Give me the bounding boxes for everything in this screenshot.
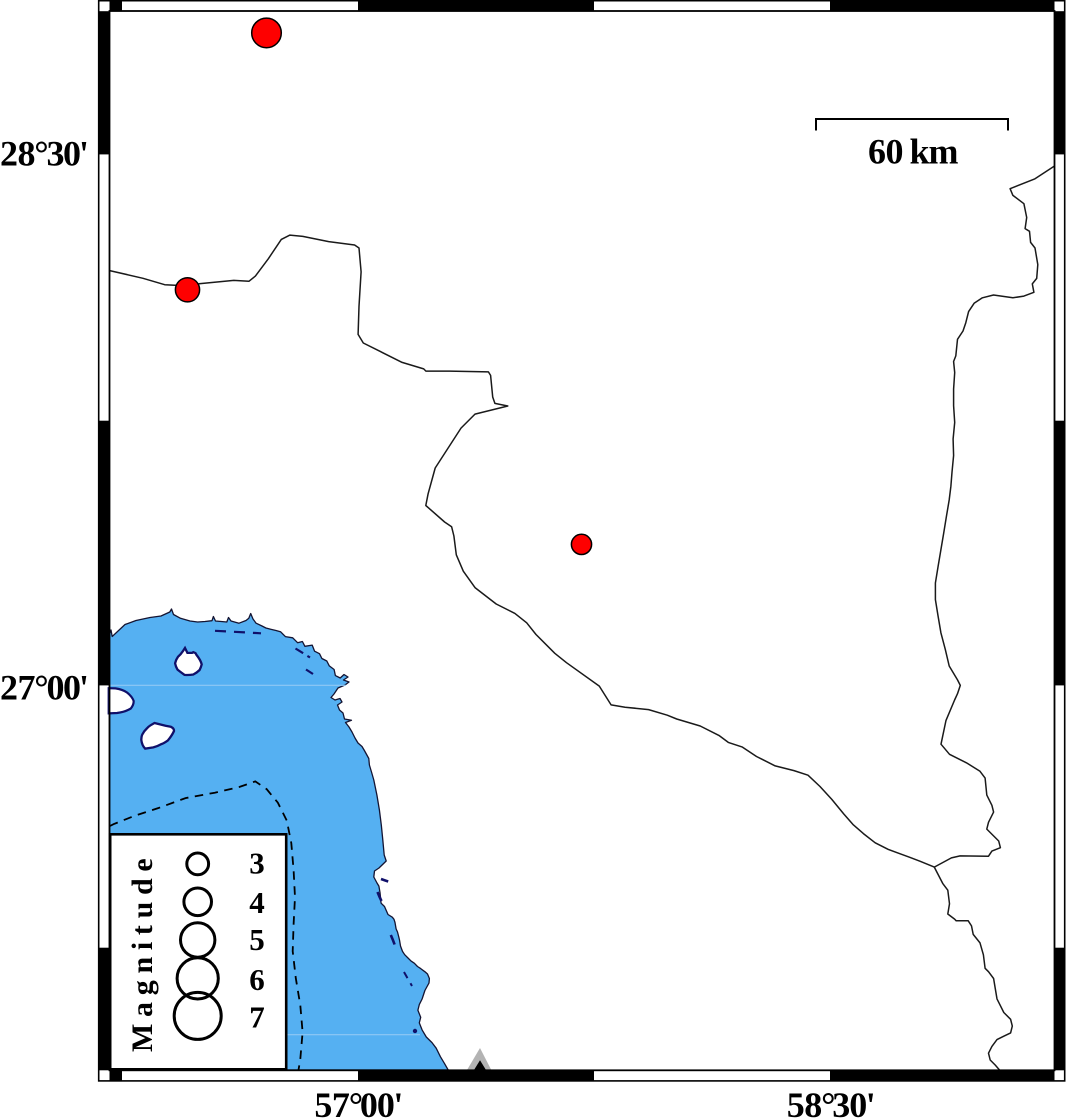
svg-text:60km: 60km	[868, 131, 959, 171]
svg-text:5: 5	[249, 922, 265, 957]
svg-text:58°30': 58°30'	[787, 1085, 876, 1119]
svg-text:6: 6	[249, 962, 265, 997]
svg-text:4: 4	[249, 885, 265, 920]
svg-text:27°00': 27°00'	[0, 668, 89, 708]
svg-text:57°00': 57°00'	[314, 1085, 403, 1119]
svg-text:28°30': 28°30'	[0, 134, 89, 174]
svg-text:Magnitude: Magnitude	[126, 852, 159, 1052]
svg-text:3: 3	[249, 846, 265, 881]
svg-text:7: 7	[249, 1000, 265, 1035]
